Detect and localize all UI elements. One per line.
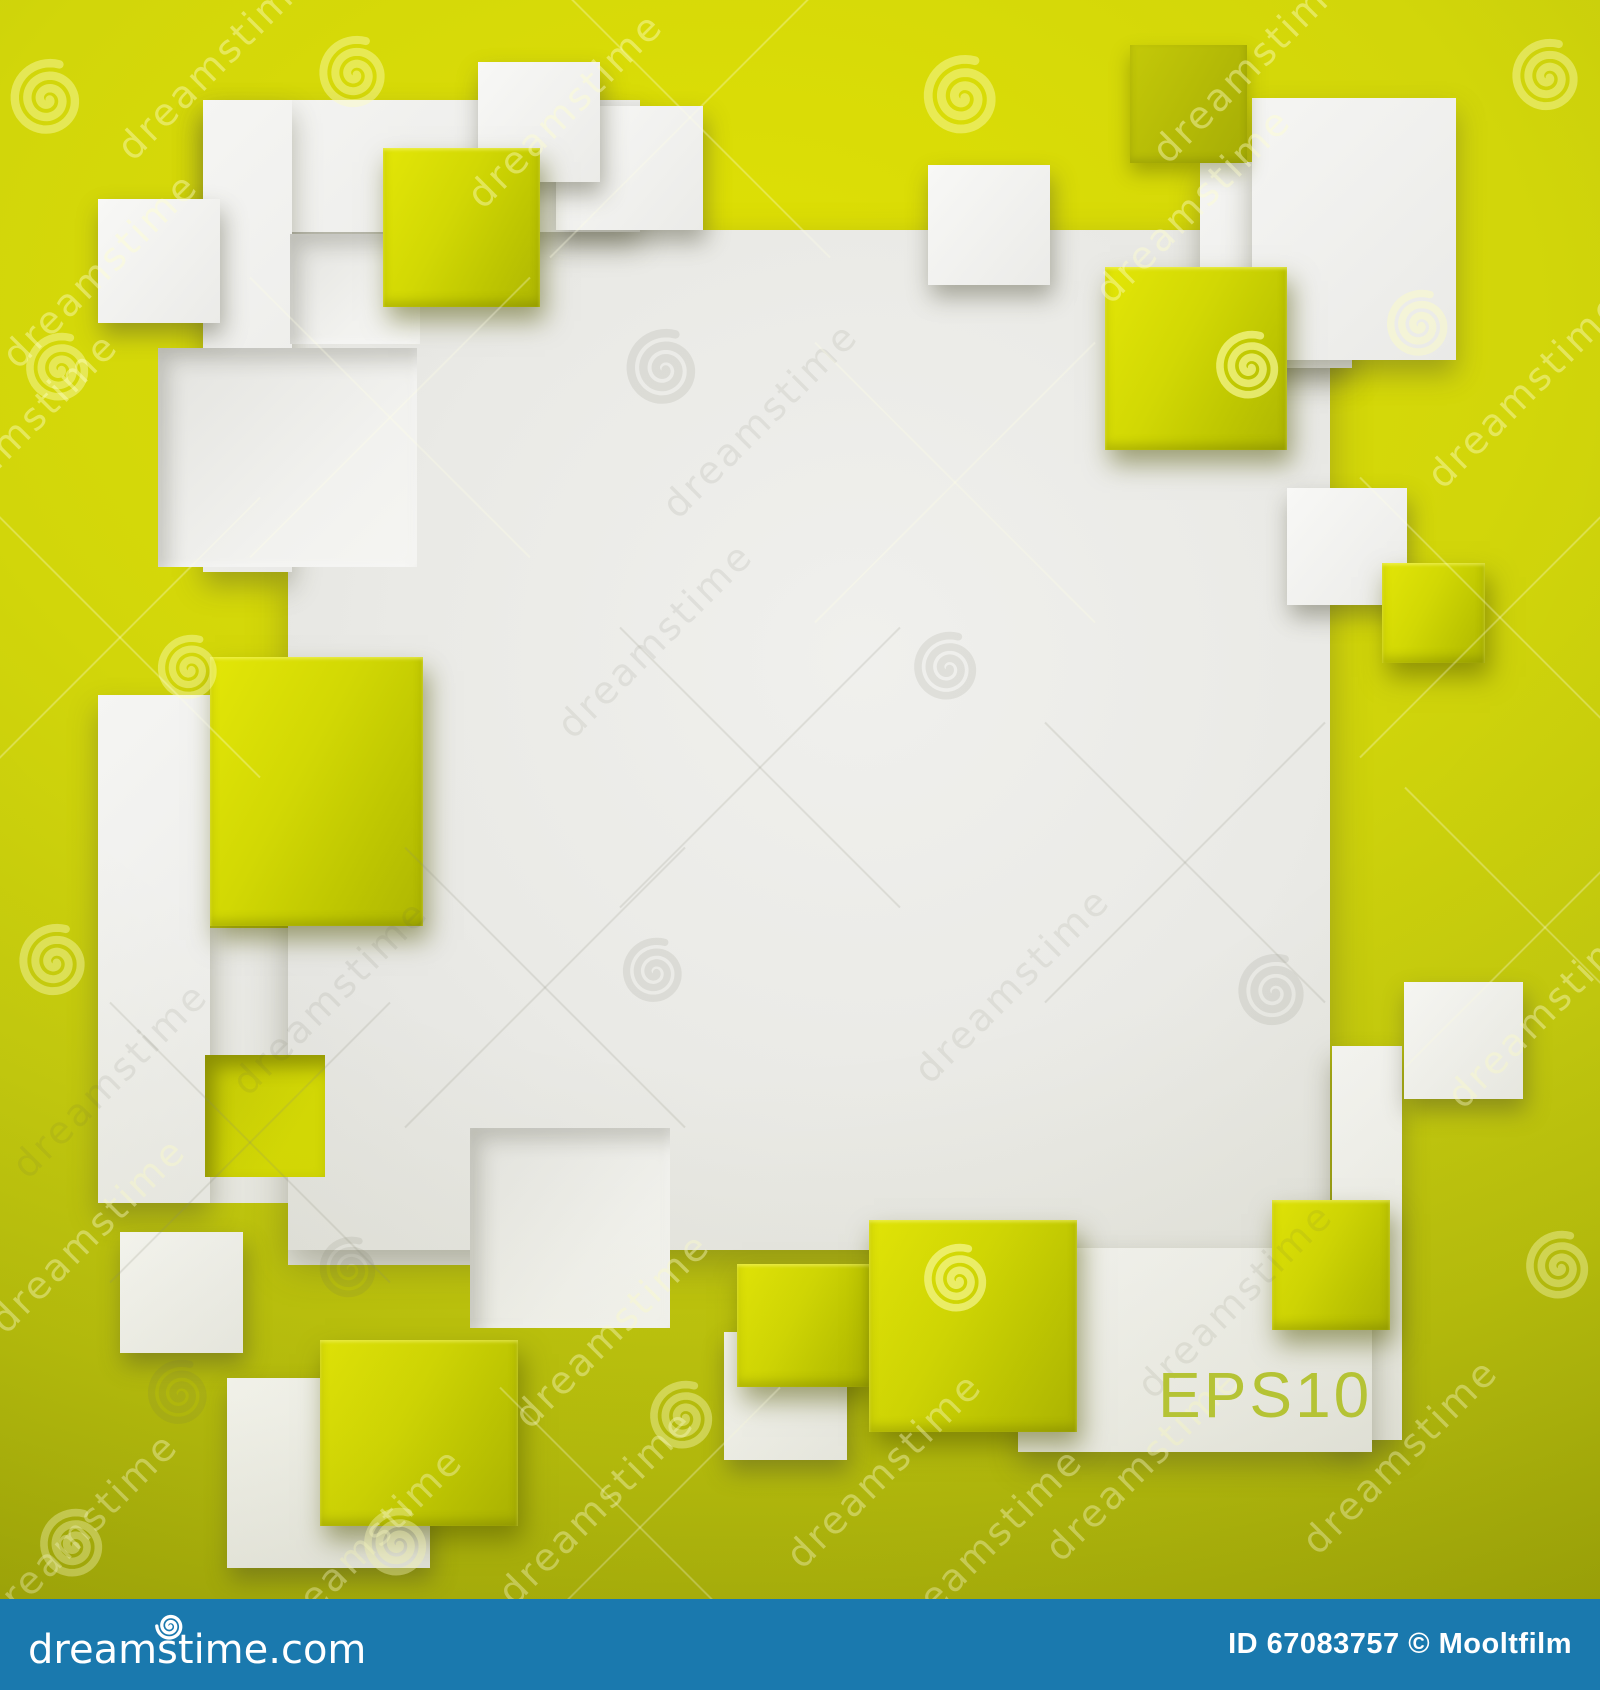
dreamstime-logo: dreamstime.com <box>28 1617 366 1673</box>
yellow-square-h <box>1105 267 1287 450</box>
recess-yellow-square <box>205 1055 325 1177</box>
white-square-k <box>120 1232 243 1353</box>
recess-square-bottom <box>470 1128 670 1328</box>
yellow-square-j <box>1382 563 1485 663</box>
logo-spiral-icon <box>155 1605 185 1651</box>
white-square-topleft <box>98 199 220 323</box>
yellow-square-left <box>210 657 423 926</box>
white-square-d <box>928 165 1050 285</box>
footer-bar: dreamstime.com ID 67083757 © Mooltfilm <box>0 1599 1600 1690</box>
recess-square-left <box>158 348 417 567</box>
logo-text: dreamstime.com <box>28 1627 366 1673</box>
eps10-label: EPS10 <box>1158 1358 1372 1432</box>
yellow-square-y4 <box>320 1340 518 1526</box>
yellow-square-y5 <box>737 1264 871 1387</box>
olive-square-top <box>1130 45 1247 163</box>
yellow-square-y7 <box>1272 1200 1390 1330</box>
white-square-right-2 <box>1404 982 1523 1099</box>
stock-image-preview: dreamstimedreamstimedreamstimedreamstime… <box>0 0 1600 1690</box>
image-credit-text: ID 67083757 © Mooltfilm <box>1228 1628 1572 1661</box>
left-white-column <box>98 695 210 1203</box>
yellow-square-c <box>383 148 540 307</box>
yellow-square-y6 <box>869 1220 1077 1432</box>
